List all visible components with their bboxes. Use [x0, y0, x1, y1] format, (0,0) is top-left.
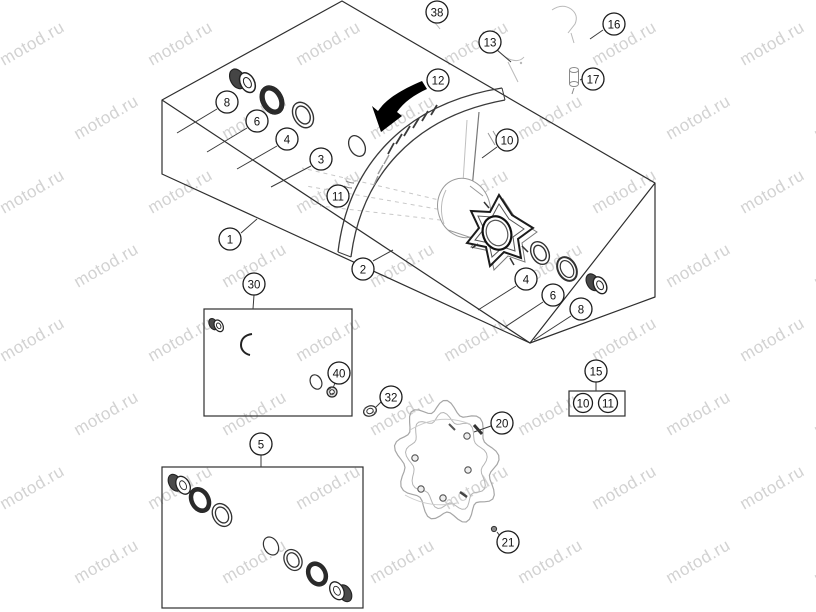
- leader-line-16: [590, 30, 603, 39]
- callout-5-24: 5: [250, 433, 272, 455]
- bushing-icon: [327, 577, 355, 607]
- watermark-text: motod.ru: [441, 461, 512, 513]
- callout-label: 32: [385, 392, 398, 404]
- callout-4-14: 4: [515, 268, 537, 290]
- tire-tread-hatch-light: [374, 155, 389, 185]
- callout-label: 15: [590, 366, 603, 378]
- callout-12-4: 12: [427, 69, 449, 91]
- parts-diagram-page: motod.rumotod.rumotod.rumotod.rumotod.ru…: [0, 0, 816, 612]
- callout-label: 30: [248, 279, 261, 291]
- watermark-text: motod.ru: [0, 17, 68, 69]
- watermark-text: motod.ru: [515, 387, 586, 439]
- watermark-text: motod.ru: [71, 239, 142, 291]
- callout-label: 13: [484, 37, 497, 49]
- callout-label: 4: [284, 134, 291, 146]
- callout-10-5: 10: [496, 129, 518, 151]
- o-ring-icon: [308, 373, 324, 391]
- callout-label: 10: [577, 398, 590, 410]
- callout-label: 17: [587, 74, 600, 86]
- callout-label: 5: [258, 439, 264, 451]
- watermark-text: motod.ru: [219, 387, 290, 439]
- watermark-text: motod.ru: [663, 91, 734, 143]
- watermark-text: motod.ru: [589, 313, 660, 365]
- callout-1-11: 1: [219, 228, 241, 250]
- brake-disc-icon: [395, 401, 500, 523]
- watermark-text: motod.ru: [811, 387, 816, 439]
- callout-21-23: 21: [497, 531, 519, 553]
- watermark-text: motod.ru: [71, 535, 142, 587]
- leader-line-10: [482, 147, 497, 158]
- callout-11-10: 11: [327, 185, 349, 207]
- callout-38-0: 38: [426, 1, 448, 23]
- watermark-text: motod.ru: [811, 535, 816, 587]
- leader-line-2: [373, 250, 393, 261]
- leader-line-4: [478, 286, 516, 310]
- spacer-bushing-icon: [583, 269, 609, 298]
- watermark-text: motod.ru: [293, 313, 364, 365]
- watermark-text: motod.ru: [663, 387, 734, 439]
- watermark-text: motod.ru: [515, 91, 586, 143]
- watermark-text: motod.ru: [737, 461, 808, 513]
- watermark-text: motod.ru: [737, 313, 808, 365]
- o-ring-icon: [345, 133, 369, 159]
- callout-10-18: 10: [574, 394, 593, 413]
- watermark-text: motod.ru: [145, 165, 216, 217]
- callout-label: 11: [332, 191, 344, 203]
- circlip-icon: [241, 334, 252, 355]
- watermark-text: motod.ru: [811, 91, 816, 143]
- leader-line-6: [505, 302, 543, 327]
- leader-line-30: [253, 295, 254, 309]
- callout-label: 8: [578, 304, 584, 316]
- rim-lock-dot: [520, 62, 522, 64]
- axle-nut-icon: [362, 404, 378, 418]
- nut-icon: [327, 387, 337, 397]
- callout-label: 11: [602, 398, 614, 410]
- callout-label: 3: [318, 154, 324, 166]
- watermark-text: motod.ru: [219, 535, 290, 587]
- watermark-text: motod.ru: [71, 387, 142, 439]
- bearing-icon: [288, 99, 317, 132]
- watermark-text: motod.ru: [811, 239, 816, 291]
- callout-label: 8: [224, 97, 230, 109]
- callout-label: 20: [496, 418, 509, 430]
- leader-line-13: [497, 50, 511, 62]
- watermark-text: motod.ru: [71, 91, 142, 143]
- leader-line-1: [241, 219, 257, 233]
- callout-4-8: 4: [276, 128, 298, 150]
- leader-line-8: [534, 316, 571, 340]
- seal-ring-icon: [302, 558, 332, 590]
- callout-3-9: 3: [310, 148, 332, 170]
- callout-11-19: 11: [599, 394, 618, 413]
- watermark-text: motod.ru: [0, 165, 68, 217]
- callout-label: 10: [501, 135, 514, 147]
- watermark-text: motod.ru: [145, 17, 216, 69]
- watermark-text: motod.ru: [589, 461, 660, 513]
- callout-13-1: 13: [479, 31, 501, 53]
- leader-line-8: [177, 109, 217, 133]
- callout-2-12: 2: [352, 258, 374, 280]
- callout-label: 6: [550, 290, 556, 302]
- watermark-text: motod.ru: [515, 535, 586, 587]
- callout-label: 21: [502, 537, 515, 549]
- callout-label: 4: [523, 274, 530, 286]
- callout-label: 2: [360, 264, 366, 276]
- callout-40-20: 40: [328, 362, 350, 384]
- callout-6-15: 6: [542, 284, 564, 306]
- exploded-view-frame: [162, 1, 655, 343]
- callout-15-17: 15: [585, 360, 607, 382]
- callout-label: 38: [431, 7, 444, 19]
- callout-label: 12: [432, 75, 445, 87]
- callout-label: 16: [608, 19, 621, 31]
- callout-label: 1: [227, 234, 233, 246]
- watermark-text: motod.ru: [663, 239, 734, 291]
- bearing-icon: [208, 500, 235, 530]
- callout-8-16: 8: [570, 298, 592, 320]
- callout-32-21: 32: [380, 386, 402, 408]
- valve-cap-icon: [570, 68, 579, 95]
- callout-16-2: 16: [603, 13, 625, 35]
- frame-outline: [162, 1, 655, 343]
- tube-valve-icon: [552, 6, 576, 43]
- callout-6-7: 6: [246, 110, 268, 132]
- watermark-text: motod.ru: [663, 535, 734, 587]
- watermark-text: motod.ru: [293, 461, 364, 513]
- callout-label: 40: [333, 368, 346, 380]
- disc-bolt-icon: [491, 526, 496, 531]
- watermark-text: motod.ru: [145, 313, 216, 365]
- callout-8-6: 8: [216, 91, 238, 113]
- watermark-text: motod.ru: [737, 17, 808, 69]
- watermark-text: motod.ru: [0, 313, 68, 365]
- exploded-parts-diagram: motod.rumotod.rumotod.rumotod.rumotod.ru…: [0, 0, 816, 612]
- watermark-text: motod.ru: [293, 17, 364, 69]
- leader-line-4: [237, 146, 277, 169]
- watermark-text: motod.ru: [737, 165, 808, 217]
- callout-17-3: 17: [582, 68, 604, 90]
- watermark-text: motod.ru: [367, 535, 438, 587]
- callout-label: 6: [254, 116, 260, 128]
- callout-30-13: 30: [243, 273, 265, 295]
- watermark-text: motod.ru: [441, 313, 512, 365]
- watermark-text: motod.ru: [0, 461, 68, 513]
- callout-20-22: 20: [491, 412, 513, 434]
